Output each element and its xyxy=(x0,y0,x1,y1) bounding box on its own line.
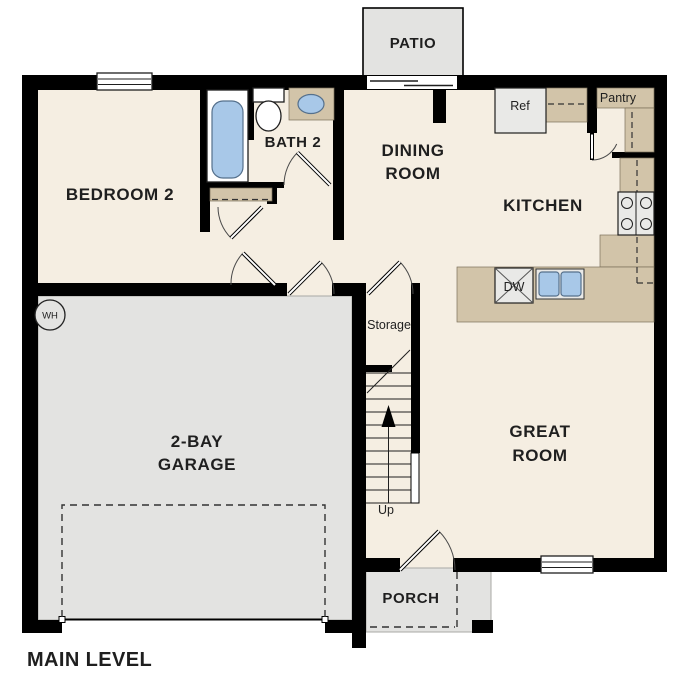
pantry-label: Pantry xyxy=(600,91,637,105)
window xyxy=(541,556,593,573)
great-room-label-line2: ROOM xyxy=(512,446,567,465)
bath2-label: BATH 2 xyxy=(265,134,322,151)
stairs-up-label: Up xyxy=(378,503,394,517)
water-heater: WH xyxy=(35,300,65,330)
closet-shelf xyxy=(210,188,272,201)
sliding-patio-door xyxy=(367,76,457,89)
stair-rail xyxy=(411,453,419,503)
dining-label-line2: ROOM xyxy=(385,164,440,183)
porch-label: PORCH xyxy=(382,590,439,607)
toilet xyxy=(253,88,284,131)
bathroom-sink xyxy=(298,95,324,114)
floor-plan-canvas: WH xyxy=(0,0,687,687)
garage-label-line2: GARAGE xyxy=(158,455,236,474)
water-heater-label: WH xyxy=(42,311,58,322)
dishwasher-label: DW xyxy=(504,280,525,294)
bedroom2-label: BEDROOM 2 xyxy=(66,185,174,204)
kitchen-label: KITCHEN xyxy=(503,196,583,215)
range xyxy=(618,192,654,235)
patio-label: PATIO xyxy=(390,35,437,52)
garage-label-line1: 2-BAY xyxy=(171,432,224,451)
refrigerator-label: Ref xyxy=(510,99,530,113)
great-room-label-line1: GREAT xyxy=(509,422,570,441)
window xyxy=(97,73,152,90)
bathtub xyxy=(207,90,248,182)
plan-title: MAIN LEVEL xyxy=(27,649,152,671)
dining-label-line1: DINING xyxy=(381,141,444,160)
floor-plan: WH xyxy=(0,0,687,687)
storage-label: Storage xyxy=(367,318,411,332)
kitchen-sink xyxy=(536,269,584,299)
